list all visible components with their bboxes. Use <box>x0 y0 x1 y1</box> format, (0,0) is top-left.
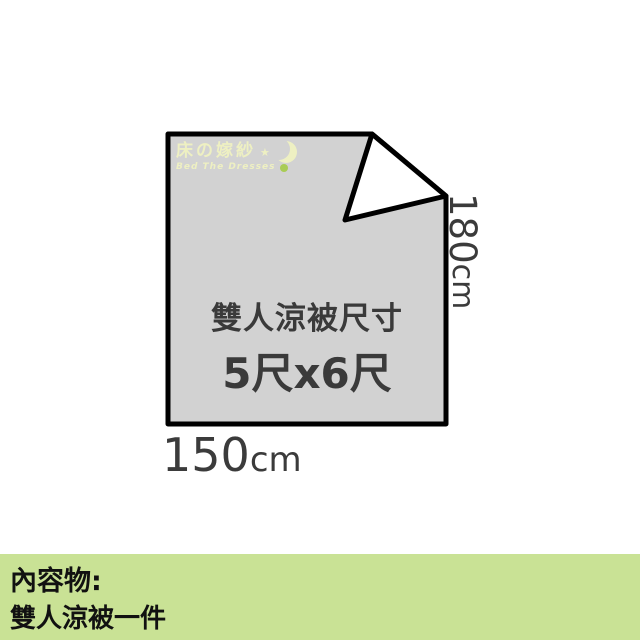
crescent-moon-icon <box>268 138 290 160</box>
brand-logo-row: 床の嫁紗 ★ <box>176 140 296 162</box>
quilt-title: 雙人涼被尺寸 <box>168 293 446 338</box>
brand-logo: 床の嫁紗 ★ Bed The Dresses <box>176 140 296 172</box>
height-value: 180 <box>441 193 484 264</box>
contents-bar: 內容物: 雙人涼被一件 <box>0 554 640 640</box>
width-unit: cm <box>250 440 302 480</box>
quilt-size-label: 5尺x6尺 <box>168 340 446 401</box>
height-unit: cm <box>445 264 480 310</box>
brand-tagline: Bed The Dresses <box>176 163 276 172</box>
brand-name: 床の嫁紗 <box>176 143 256 160</box>
height-dimension-label: 180cm <box>444 193 481 309</box>
accent-dot-icon <box>280 164 288 172</box>
contents-heading: 內容物: <box>10 567 640 597</box>
product-size-infographic: 床の嫁紗 ★ Bed The Dresses 雙人涼被尺寸 5尺x6尺 180c… <box>0 0 640 640</box>
contents-item: 雙人涼被一件 <box>10 605 640 634</box>
width-dimension-label: 150cm <box>162 428 302 482</box>
brand-tagline-row: Bed The Dresses <box>176 163 296 172</box>
width-value: 150 <box>162 428 250 482</box>
